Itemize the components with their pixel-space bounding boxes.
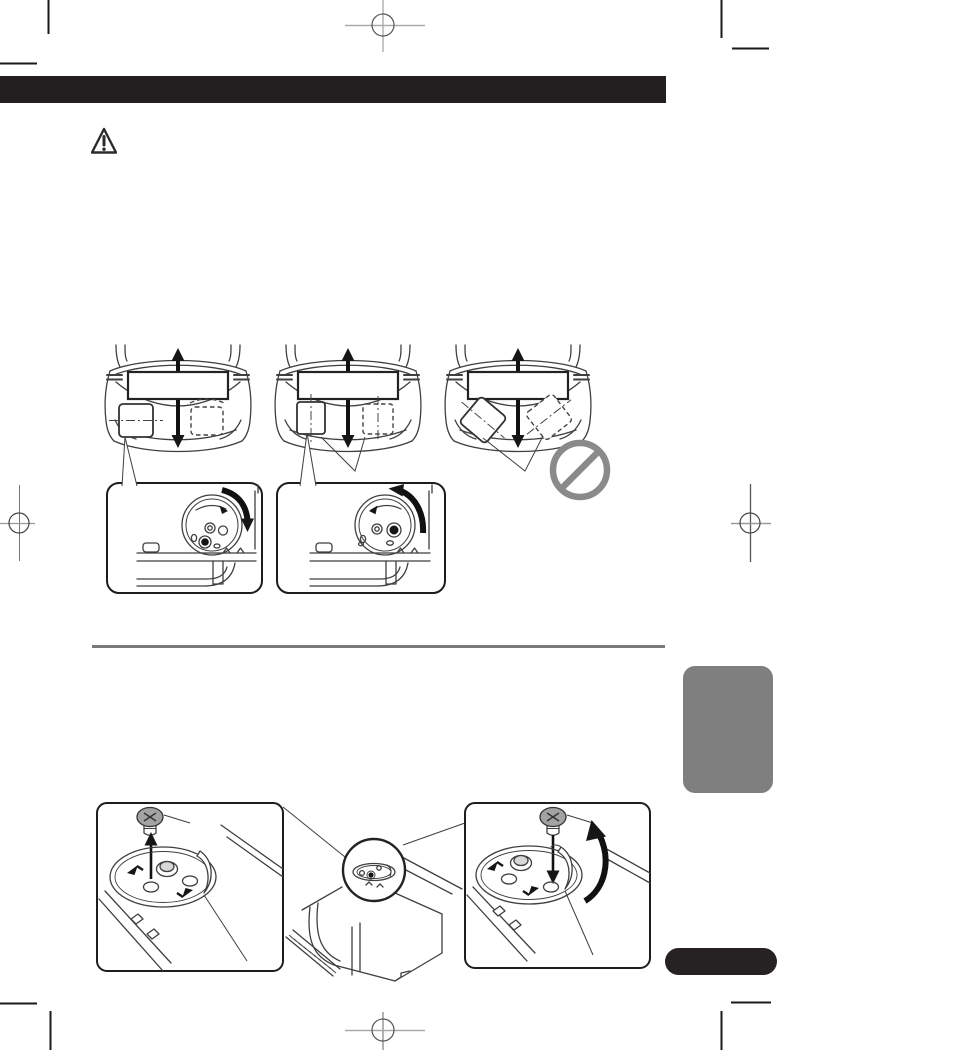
pointer-v-car2 bbox=[321, 437, 365, 471]
warning-icon bbox=[91, 125, 117, 159]
head-unit-rect bbox=[128, 372, 228, 399]
car-top-view-1 bbox=[105, 345, 251, 452]
manual-page bbox=[0, 0, 954, 1050]
registration-mark-left bbox=[0, 485, 35, 561]
registration-mark-top-center bbox=[345, 0, 425, 52]
magnifier-circle bbox=[343, 839, 405, 901]
leader-wedge-2 bbox=[300, 433, 316, 486]
prohibition-icon bbox=[553, 443, 607, 497]
trim-mark-top-right bbox=[722, 0, 770, 49]
figure-antitheft-screw bbox=[90, 795, 660, 995]
car-top-view-2 bbox=[275, 345, 421, 452]
head-unit-rect bbox=[298, 372, 398, 399]
magnifier-leader-left bbox=[283, 807, 345, 857]
head-unit-3d bbox=[286, 839, 462, 981]
page-number-pill bbox=[665, 948, 777, 975]
registration-mark-bottom-center bbox=[345, 1012, 425, 1050]
remote-position-dashed bbox=[191, 407, 223, 435]
pointer-v-car3 bbox=[483, 436, 543, 471]
trim-mark-bottom-left bbox=[0, 1004, 51, 1050]
chapter-tab bbox=[683, 666, 773, 793]
car-top-view-3 bbox=[445, 345, 591, 452]
leader-wedge-1 bbox=[122, 437, 137, 486]
section-divider bbox=[92, 645, 665, 648]
magnifier-leader-right bbox=[403, 823, 465, 845]
registration-mark-right bbox=[731, 484, 771, 562]
screw-remove-box bbox=[97, 803, 283, 971]
trim-mark-bottom-right bbox=[722, 1003, 772, 1050]
section-header-bar bbox=[0, 76, 666, 103]
figure-installation-orientation bbox=[90, 340, 670, 602]
trim-mark-top-left bbox=[0, 0, 49, 64]
